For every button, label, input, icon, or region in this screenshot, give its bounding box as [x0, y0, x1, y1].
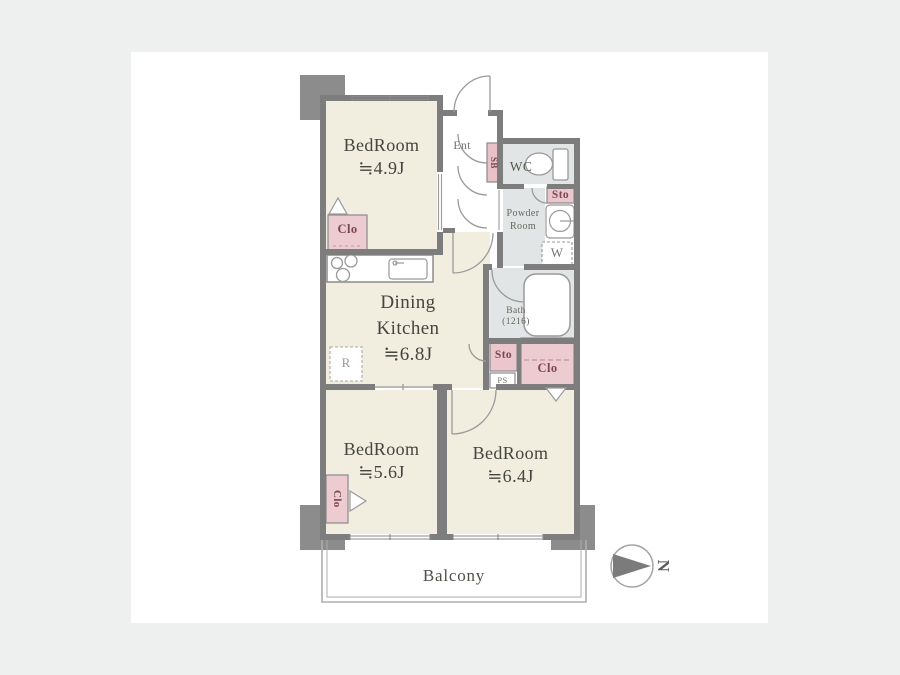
washbasin-icon: [546, 205, 574, 238]
powder-room-floor: [503, 188, 545, 266]
floor-plan-drawing: [0, 0, 900, 675]
closet-bedroom-mid-box: [326, 475, 348, 523]
washer-space-outline: [542, 242, 572, 267]
kitchen-sink-icon: [389, 259, 427, 279]
kitchen-counter: [327, 255, 433, 282]
storage-by-kitchen-box: [490, 342, 517, 371]
bedroom-large-floor: [447, 390, 574, 534]
floor-plan-image: BedRoom ≒4.9J Ent SB WC Sto Powder Room …: [0, 0, 900, 675]
refrigerator-space-outline: [330, 347, 362, 381]
closet-bedroom-large-box: [521, 338, 574, 385]
bathtub-icon: [524, 274, 570, 336]
compass-icon: [611, 545, 653, 587]
storage-by-wc-box: [547, 187, 574, 203]
